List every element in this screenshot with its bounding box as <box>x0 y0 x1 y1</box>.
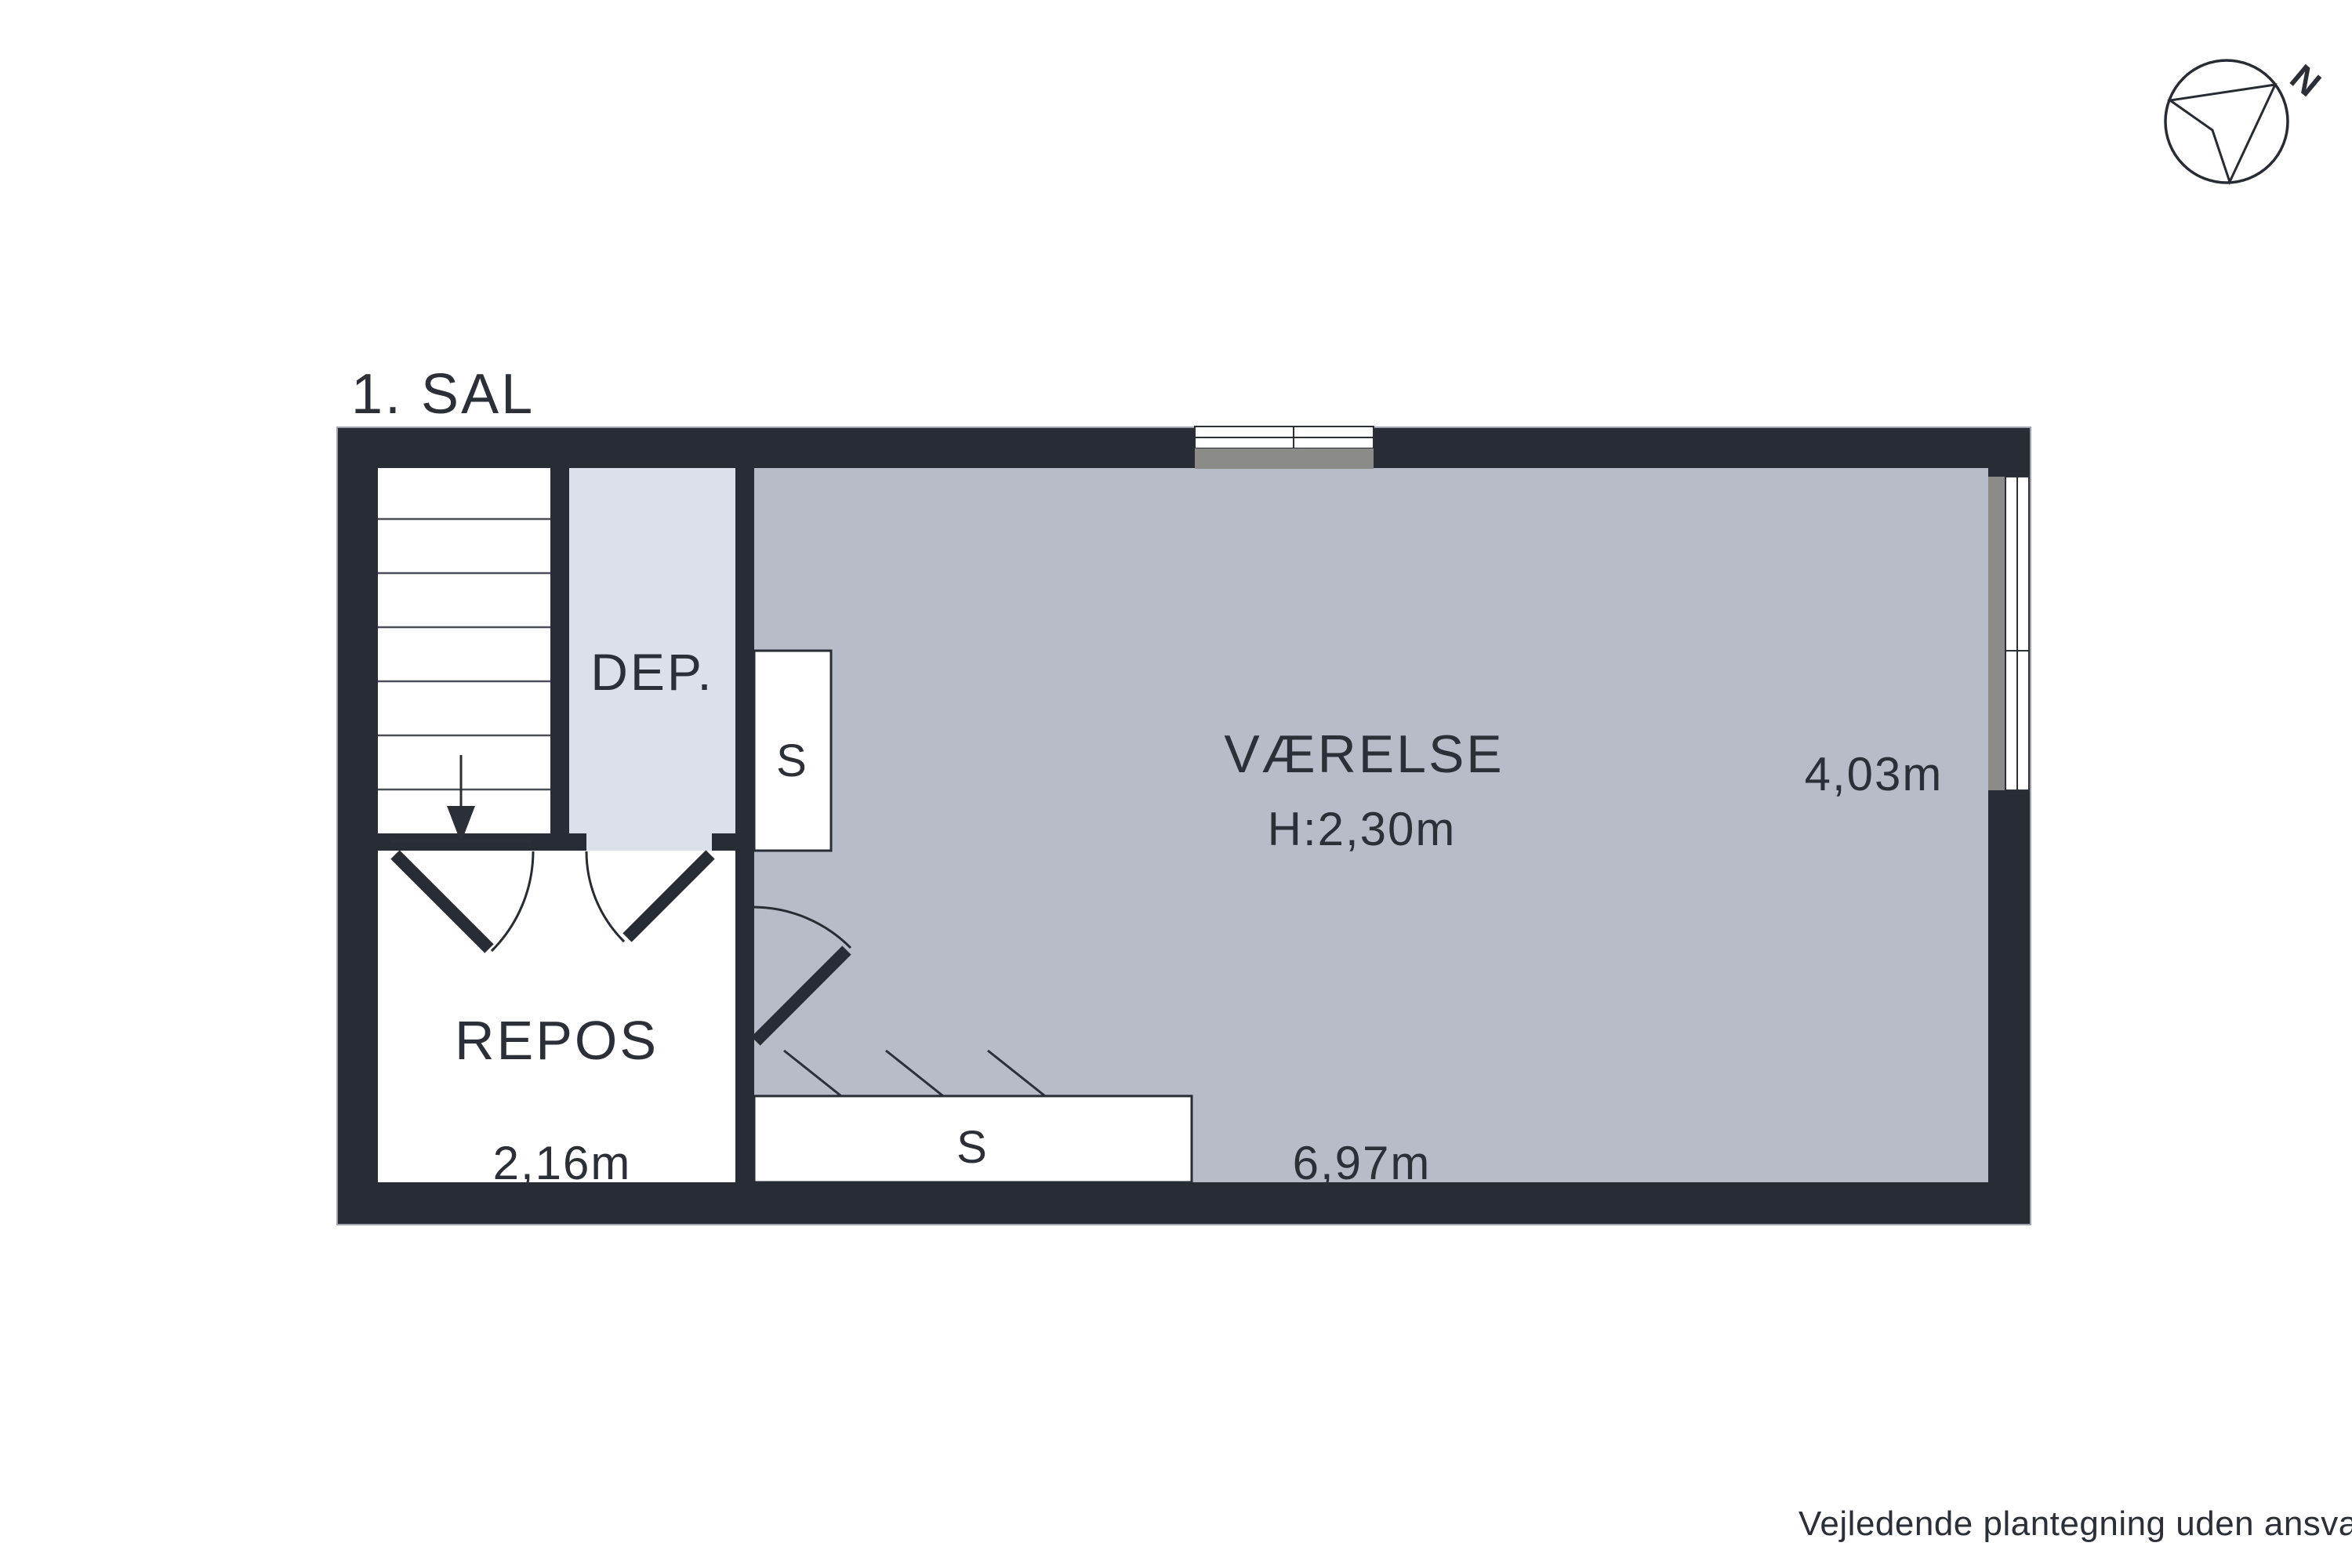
north-label: N <box>2283 56 2329 104</box>
wall-tab-left <box>378 833 392 851</box>
room-label-repos: REPOS <box>455 1010 659 1071</box>
floor-title: 1. SAL <box>351 363 535 426</box>
wall-repos-vaerelse-stub <box>735 1045 754 1182</box>
floor-plan-page: 1. SAL <box>0 0 2352 1568</box>
measure-vaerelse-width: 6,97m <box>1293 1137 1432 1189</box>
measure-vaerelse-ceiling: H:2,30m <box>1268 803 1457 855</box>
window-right <box>1988 477 2029 790</box>
dep-door-opening <box>586 833 712 851</box>
window-top <box>1195 426 1374 469</box>
wall-dep-vaerelse <box>735 468 754 907</box>
wall-stairs-dep <box>550 468 569 833</box>
staircase-floor <box>378 468 550 833</box>
floor-plan: 1. SAL <box>0 0 2352 1568</box>
room-label-vaerelse: VÆRELSE <box>1224 724 1504 784</box>
north-arrow-icon: N <box>2165 56 2328 183</box>
closet-upper-label: S <box>776 735 809 786</box>
room-label-dep: DEP. <box>590 643 714 701</box>
measure-repos-width: 2,16m <box>493 1137 632 1189</box>
closet-lower-label: S <box>956 1122 989 1173</box>
wall-tab-middle <box>533 833 586 851</box>
measure-vaerelse-depth: 4,03m <box>1805 748 1944 800</box>
disclaimer-text: Vejledende plantegning uden ansvar <box>1798 1504 2352 1543</box>
wall-tab-right <box>712 833 735 851</box>
